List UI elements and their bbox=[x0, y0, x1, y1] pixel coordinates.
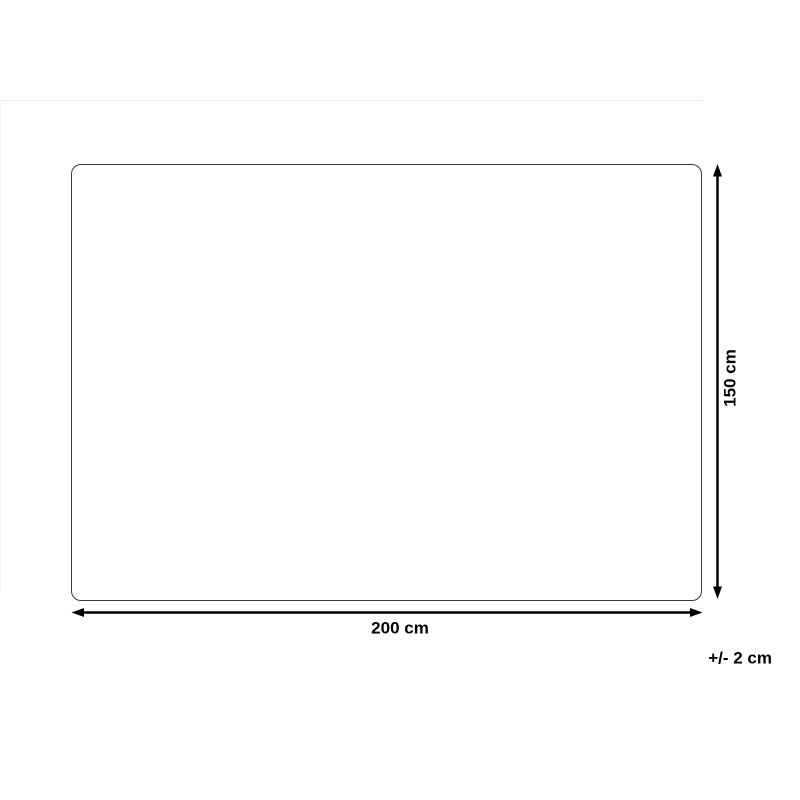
height-dimension-label: 150 cm bbox=[722, 349, 739, 407]
width-dimension-arrow bbox=[72, 608, 703, 617]
width-dimension-label: 200 cm bbox=[371, 620, 429, 637]
faint-horizontal-divider bbox=[0, 100, 702, 101]
arrowhead-up-icon bbox=[713, 164, 722, 177]
dimension-diagram: 150 cm 200 cm +/- 2 cm bbox=[0, 0, 800, 800]
tolerance-label: +/- 2 cm bbox=[708, 650, 772, 667]
arrowhead-left-icon bbox=[72, 608, 85, 617]
arrowhead-down-icon bbox=[713, 587, 722, 600]
product-outline-rectangle bbox=[71, 164, 702, 601]
faint-vertical-divider bbox=[0, 100, 1, 592]
arrowhead-right-icon bbox=[690, 608, 703, 617]
